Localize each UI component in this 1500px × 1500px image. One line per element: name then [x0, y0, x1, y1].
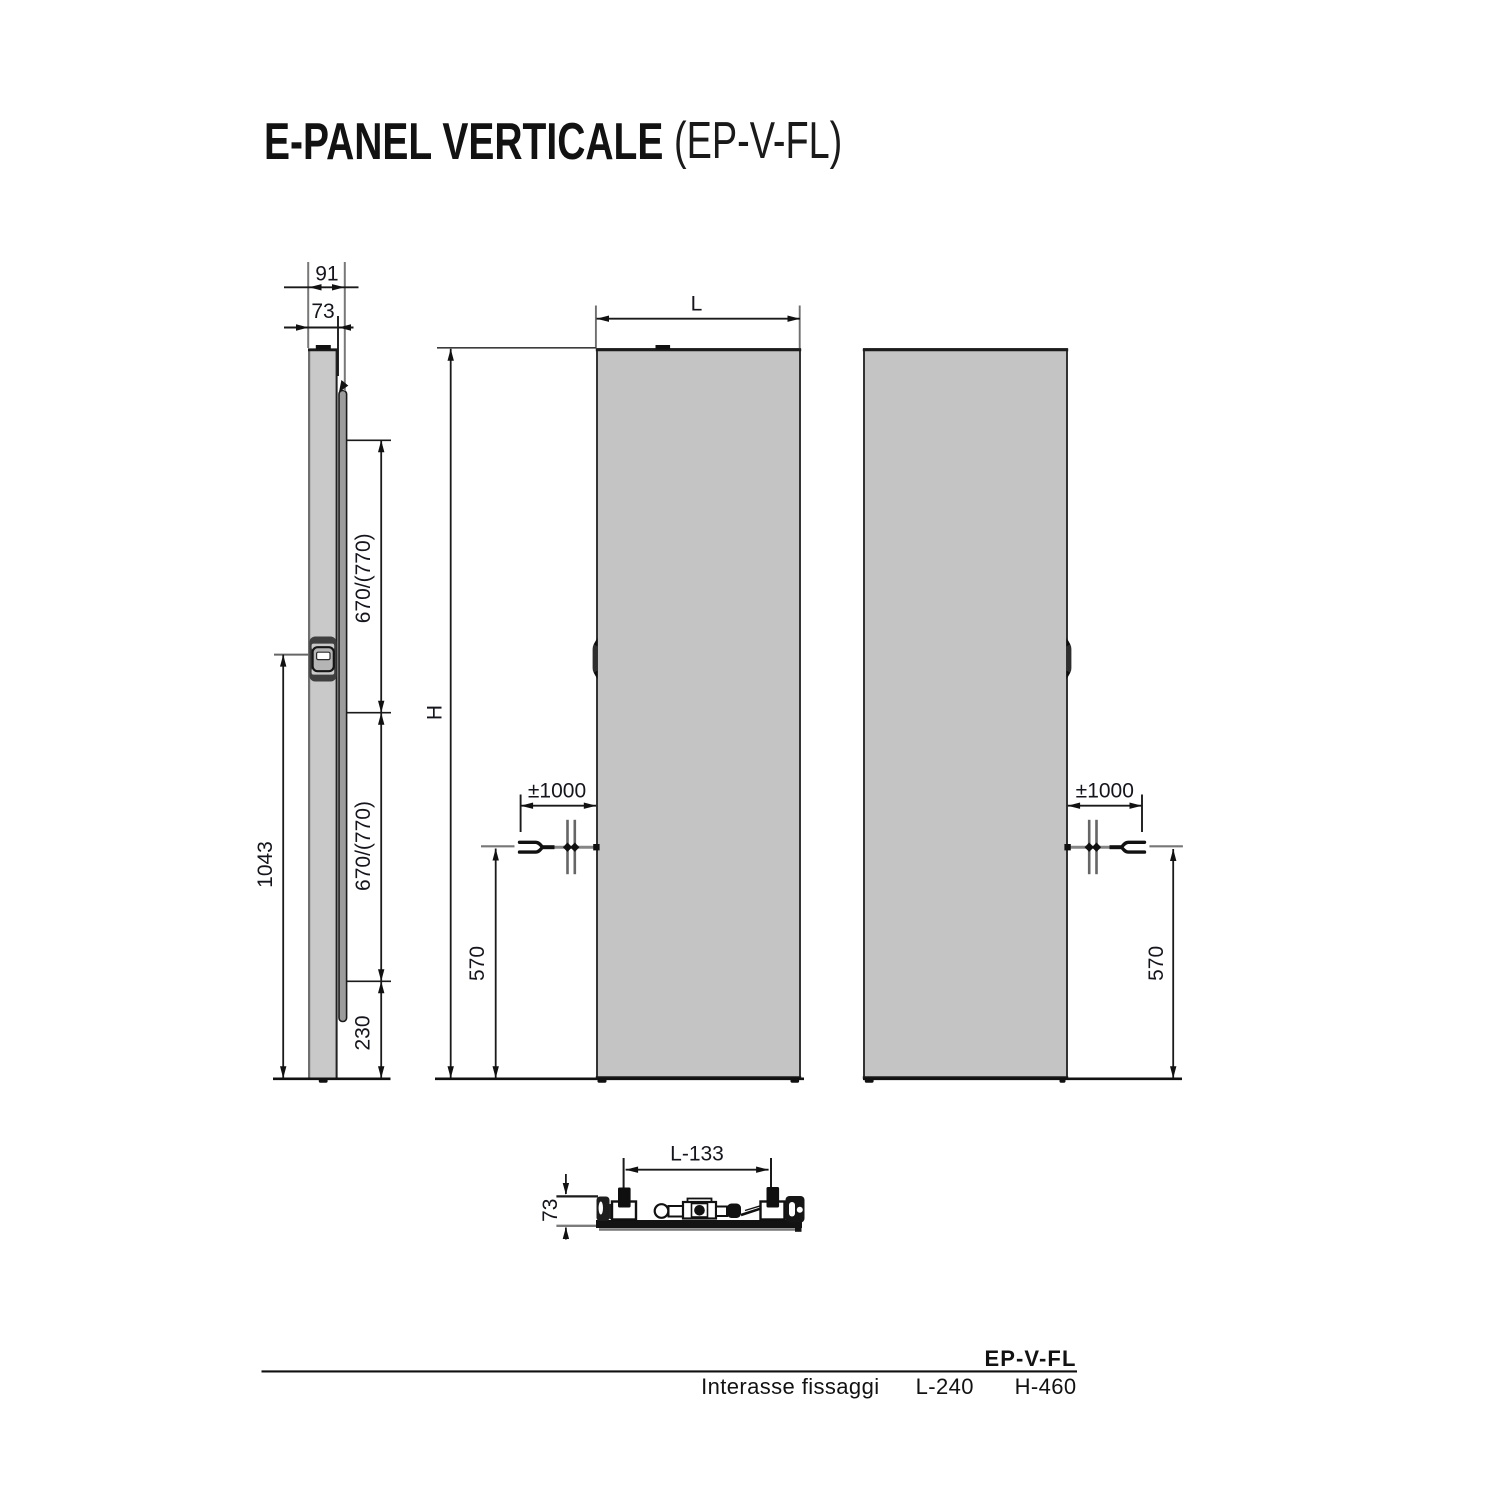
svg-text:H: H — [424, 705, 447, 720]
svg-text:230: 230 — [351, 1015, 374, 1050]
svg-text:±1000: ±1000 — [528, 779, 586, 802]
svg-text:L-133: L-133 — [670, 1143, 724, 1166]
svg-text:670/(770): 670/(770) — [352, 801, 375, 891]
svg-text:73: 73 — [311, 300, 334, 323]
svg-text:E-PANEL VERTICALE: E-PANEL VERTICALE — [264, 111, 663, 170]
svg-text:670/(770): 670/(770) — [352, 533, 375, 623]
svg-text:±1000: ±1000 — [1076, 779, 1134, 802]
svg-text:91: 91 — [315, 262, 338, 285]
svg-text:(EP-V-FL): (EP-V-FL) — [674, 111, 842, 169]
svg-text:Interasse fissaggi: Interasse fissaggi — [701, 1374, 879, 1399]
svg-text:L-240: L-240 — [916, 1374, 974, 1399]
svg-text:L: L — [691, 292, 703, 315]
svg-text:570: 570 — [466, 946, 489, 981]
svg-text:1043: 1043 — [254, 841, 277, 888]
svg-text:570: 570 — [1145, 946, 1168, 981]
svg-text:EP-V-FL: EP-V-FL — [984, 1346, 1076, 1371]
svg-text:H-460: H-460 — [1015, 1374, 1077, 1399]
svg-text:73: 73 — [539, 1199, 562, 1222]
